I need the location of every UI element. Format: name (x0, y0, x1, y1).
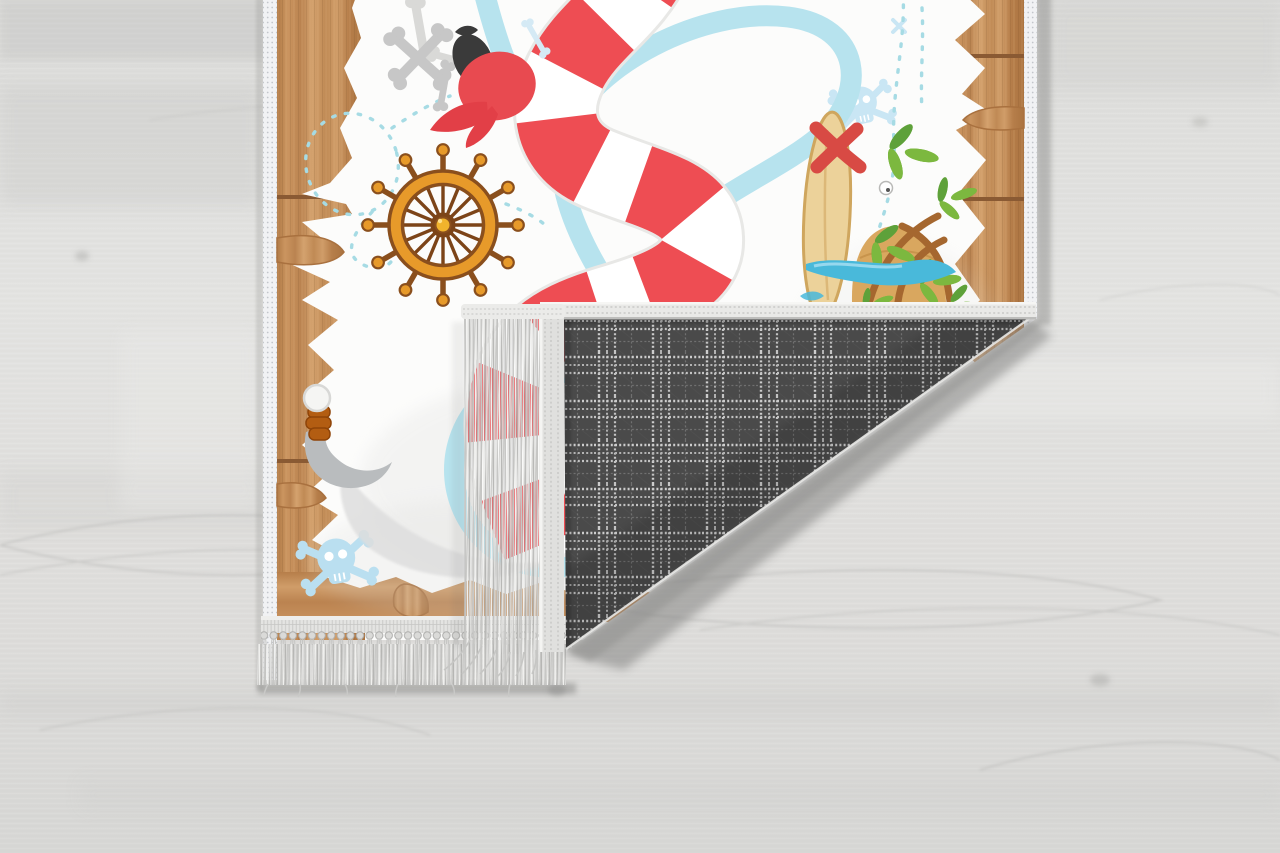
fringe-shadow (452, 322, 466, 648)
flap-top-binding (540, 302, 1036, 320)
hook-pommel (304, 385, 330, 411)
flap-fringe (444, 304, 565, 676)
product-photo: Product photo: kids pirate treasure-map … (0, 0, 1280, 853)
scene-svg: Product photo: kids pirate treasure-map … (0, 0, 1280, 853)
left-binding-stitch (263, 0, 277, 680)
flap-corner-cap (461, 304, 565, 319)
flap-side-binding (540, 318, 564, 652)
shell (880, 182, 893, 195)
